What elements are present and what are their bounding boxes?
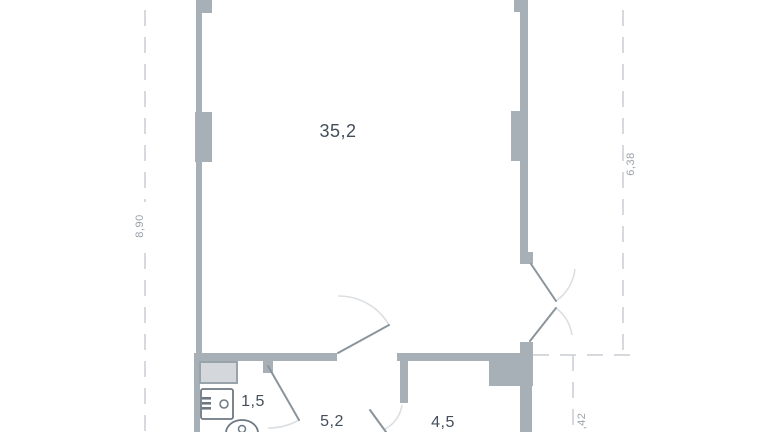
wall-corner-block [489, 353, 533, 386]
ventilation-shaft [200, 362, 237, 383]
wall-bottom-right-segment [397, 353, 489, 361]
wall-right-top-pier [514, 0, 528, 12]
balcony-door-jamb-top [520, 252, 533, 264]
room2-door-arc [385, 405, 402, 429]
wall-bottom-left-segment [194, 353, 337, 361]
bathroom-door-leaf [268, 366, 299, 420]
wall-left [196, 0, 202, 354]
wall-left-top-pier [196, 0, 212, 13]
room-labels: 35,2 1,5 5,2 4,5 [241, 121, 455, 431]
wall-divider-hallway-room2 [400, 361, 408, 403]
wall-right-pier [511, 111, 528, 161]
door-leaves [268, 264, 556, 432]
bathroom-area-label: 1,5 [241, 393, 265, 410]
dimension-label-bottom-right: ,42 [576, 413, 588, 430]
walls [194, 0, 533, 432]
dimension-label-right: 6,38 [625, 152, 637, 175]
balcony-door-arc-top [556, 269, 575, 301]
bathroom-door-arc [268, 420, 299, 428]
living-door-leaf [338, 325, 389, 353]
balcony-door-arc-bottom [556, 308, 572, 335]
floor-plan-drawing: 35,2 1,5 5,2 4,5 8,90 6,38 ,42 [0, 0, 768, 432]
living-room-area-label: 35,2 [319, 121, 356, 141]
washing-machine-drawer-icon [202, 397, 211, 410]
balcony-door-leaf-bottom [530, 308, 556, 341]
dimension-label-left: 8,90 [134, 214, 146, 237]
floor-plan-page: 35,2 1,5 5,2 4,5 8,90 6,38 ,42 [0, 0, 768, 432]
balcony-door-leaf-top [531, 264, 556, 301]
room2-area-label: 4,5 [431, 414, 455, 431]
wall-right-lower [520, 386, 532, 432]
dimension-labels: 8,90 6,38 ,42 [134, 152, 637, 429]
wall-left-pier [195, 112, 212, 162]
living-door-arc [338, 296, 389, 325]
room2-door-leaf [370, 410, 386, 432]
hallway-area-label: 5,2 [320, 413, 344, 430]
